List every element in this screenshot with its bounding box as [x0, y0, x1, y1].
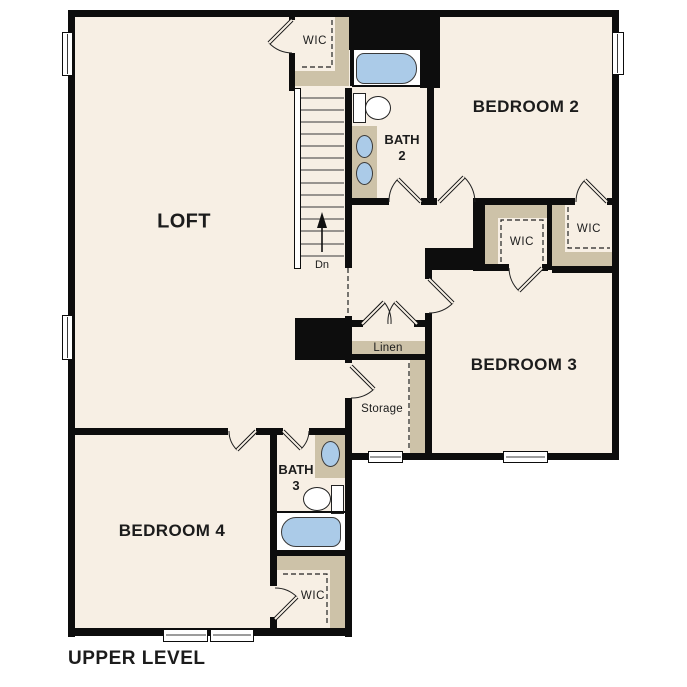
stair-dn-label: Dn [315, 259, 329, 271]
floor-plan: LOFT BEDROOM 2 BEDROOM 3 BEDROOM 4 BATH2… [0, 0, 687, 687]
window-mullions [68, 34, 618, 635]
storage-label: Storage [361, 403, 403, 415]
wic-top-label: WIC [303, 35, 327, 47]
wic-bedroom4-label: WIC [301, 590, 325, 602]
bedroom2-label: BEDROOM 2 [473, 97, 580, 117]
stair-down-arrow [317, 212, 327, 252]
bedroom3-label: BEDROOM 3 [471, 355, 578, 375]
loft-label: LOFT [157, 211, 211, 234]
bath3-label: BATH3 [278, 462, 313, 494]
linen-label: Linen [373, 342, 402, 354]
bath2-label: BATH2 [384, 132, 419, 164]
plan-linework [0, 0, 687, 687]
plan-title: UPPER LEVEL [68, 648, 205, 670]
wic-bedroom2-label: WIC [577, 223, 601, 235]
bedroom4-label: BEDROOM 4 [119, 521, 226, 541]
wic-bedroom3-label: WIC [510, 236, 534, 248]
